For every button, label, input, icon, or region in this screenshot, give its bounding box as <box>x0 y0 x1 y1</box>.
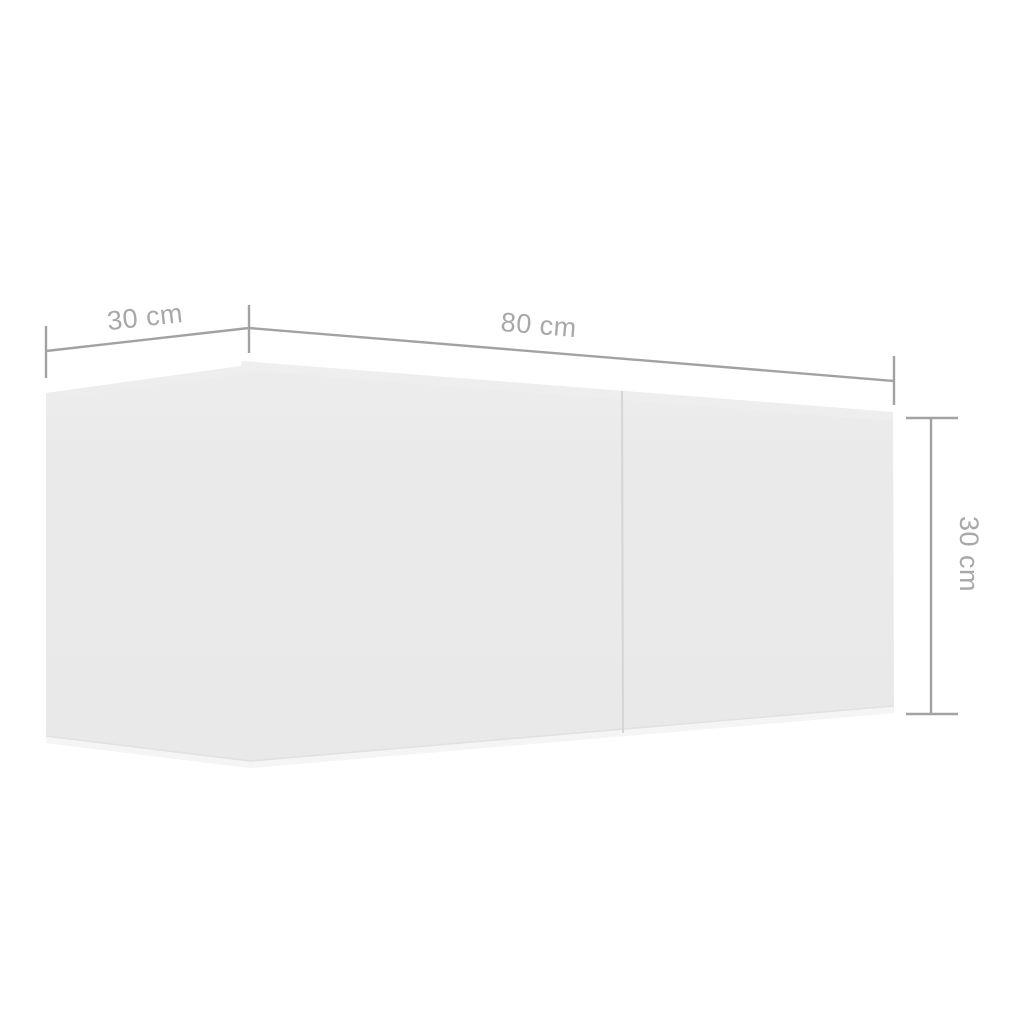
cabinet-door-seam <box>622 391 623 733</box>
product-dimension-image: 30 cm 80 cm 30 cm <box>0 0 1024 1024</box>
dimension-diagram: 30 cm 80 cm 30 cm <box>0 0 1024 1024</box>
depth-dimension-label: 30 cm <box>106 298 185 336</box>
height-dimension <box>906 418 958 714</box>
cabinet-body <box>46 361 894 768</box>
height-dimension-label: 30 cm <box>954 516 984 592</box>
cabinet <box>46 361 894 768</box>
width-dimension-label: 80 cm <box>500 307 578 343</box>
